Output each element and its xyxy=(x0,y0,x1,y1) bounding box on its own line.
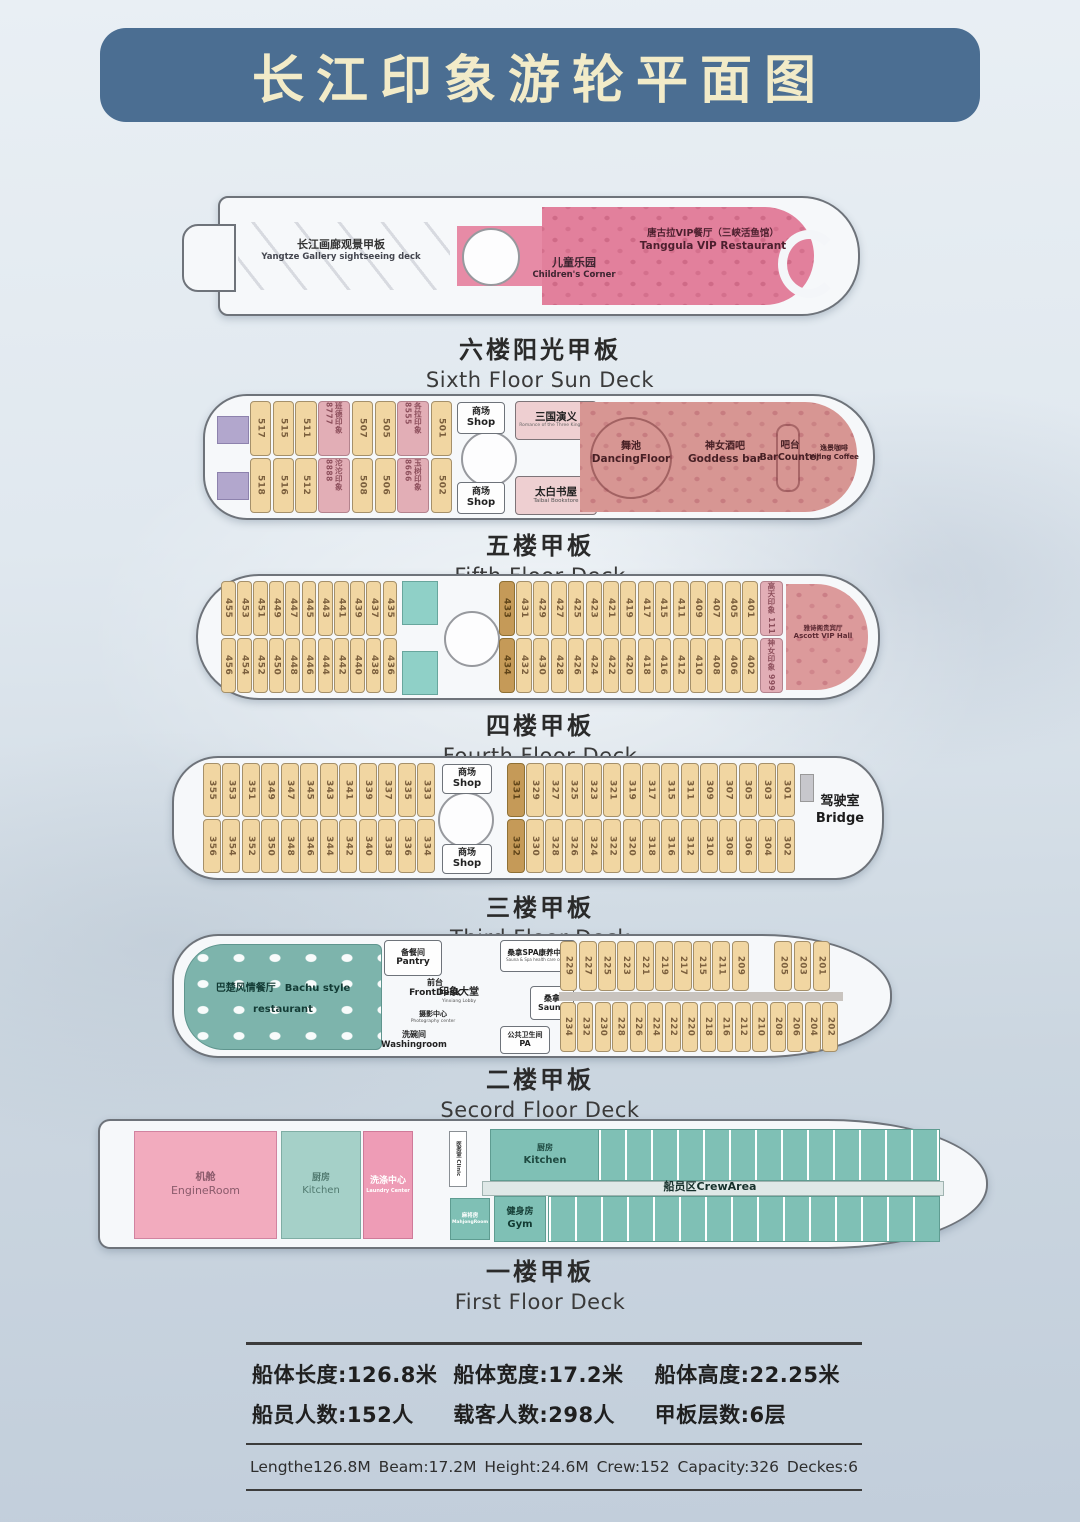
cabin: 402 xyxy=(742,638,758,693)
cabin: 512 xyxy=(295,458,316,513)
cabin: 205 xyxy=(774,941,792,991)
cabin: 406 xyxy=(725,638,741,693)
cabin: 302 xyxy=(777,819,795,873)
cabin: 350 xyxy=(261,819,279,873)
cabin: 422 xyxy=(603,638,619,693)
spec-item-en: Lengthe126.8M xyxy=(250,1458,371,1476)
cabin: 517 xyxy=(250,401,271,456)
spec-item-cn: 船体高度:22.25米 xyxy=(655,1359,856,1389)
deck2-plan: 巴楚风情餐厅 Bachu style restaurant 备餐间Pantry … xyxy=(172,934,892,1058)
cabin: 431 xyxy=(516,581,532,636)
bachu-restaurant-area: 巴楚风情餐厅 Bachu style restaurant xyxy=(184,944,382,1050)
cabin: 515 xyxy=(273,401,294,456)
mahjong-label: 麻将房MahjongRoom xyxy=(452,1213,488,1226)
cabin: 神女印象 999 xyxy=(760,638,784,693)
cabin: 317 xyxy=(642,763,660,817)
cabin: 327 xyxy=(545,763,563,817)
cabin: 223 xyxy=(617,941,635,991)
cabin: 316 xyxy=(661,819,679,873)
tanggula-vip-label: 唐古拉VIP餐厅（三峡活鱼馆） Tanggula VIP Restaurant xyxy=(618,228,808,254)
deck6-stern-seam xyxy=(216,226,224,286)
deck6-caption-en: Sixth Floor Sun Deck xyxy=(0,368,1080,392)
deck5-rooms-top: 517515511班德印象 8777507505各拉印象 8555501 xyxy=(249,401,453,456)
cabin: 318 xyxy=(642,819,660,873)
cabin: 411 xyxy=(673,581,689,636)
cabin: 319 xyxy=(623,763,641,817)
cabin: 336 xyxy=(398,819,416,873)
cabin: 440 xyxy=(350,638,365,693)
pantry-box: 备餐间Pantry xyxy=(384,940,442,976)
cabin: 333 xyxy=(417,763,435,817)
service-block xyxy=(402,651,438,695)
cabin: 204 xyxy=(805,1002,821,1052)
cabin: 346 xyxy=(300,819,318,873)
cabin: 209 xyxy=(732,941,750,991)
cabin: 401 xyxy=(742,581,758,636)
cabin: 312 xyxy=(681,819,699,873)
atrium xyxy=(461,431,517,487)
cabin: 418 xyxy=(638,638,654,693)
cabin: 408 xyxy=(707,638,723,693)
spec-item-cn: 甲板层数:6层 xyxy=(655,1399,856,1429)
deck3-rooms-bottom-right: 3323303283263243223203183163123103083063… xyxy=(506,819,796,873)
cabin: 343 xyxy=(320,763,338,817)
cabin: 328 xyxy=(545,819,563,873)
cabin: 451 xyxy=(253,581,268,636)
goddess-bar-label: 神女酒吧Goddess bar xyxy=(680,440,770,467)
cabin: 518 xyxy=(250,458,271,513)
kitchen-label: 厨房Kitchen xyxy=(302,1173,340,1198)
cabin: 307 xyxy=(719,763,737,817)
deck2-caption: 二楼甲板 Secord Floor Deck xyxy=(0,1060,1080,1122)
spec-item-cn: 船体宽度:17.2米 xyxy=(453,1359,654,1389)
cabin: 423 xyxy=(586,581,602,636)
atrium xyxy=(444,611,500,667)
cabin: 311 xyxy=(681,763,699,817)
cabin: 511 xyxy=(295,401,316,456)
cabin: 329 xyxy=(526,763,544,817)
cabin: 456 xyxy=(221,638,236,693)
deck6-plan: 长江画廊观景甲板 Yangtze Gallery sightseeing dec… xyxy=(218,196,860,316)
shop-box: 商场Shop xyxy=(457,402,505,434)
cabin: 215 xyxy=(693,941,711,991)
deck5-rooms-bottom: 518516512沱沱印象 8888508506玉树印象 8666502 xyxy=(249,458,453,513)
laundry-label: 洗涤中心Laundry Center xyxy=(366,1176,410,1194)
spec-item-cn: 船员人数:152人 xyxy=(252,1399,453,1429)
upper-kitchen-label: 厨房Kitchen xyxy=(524,1143,567,1166)
cabin: 501 xyxy=(431,401,452,456)
deck3-plan: 355353351349347345343341339337335333 356… xyxy=(172,756,884,880)
cabin: 416 xyxy=(655,638,671,693)
cabin: 412 xyxy=(673,638,689,693)
cabin: 443 xyxy=(318,581,333,636)
cabin: 441 xyxy=(334,581,349,636)
cabin: 玉树印象 8666 xyxy=(397,458,429,513)
cabin: 450 xyxy=(269,638,284,693)
photography-label: 摄影中心Photography center xyxy=(400,1010,466,1025)
cabin: 427 xyxy=(551,581,567,636)
cabin: 324 xyxy=(584,819,602,873)
cabin: 221 xyxy=(636,941,654,991)
cabin: 227 xyxy=(579,941,597,991)
clinic-label-cn: 医务室 xyxy=(455,1141,461,1158)
cabin: 226 xyxy=(630,1002,646,1052)
yijing-coffee-label: 逸景咖啡Yijing Coffee xyxy=(808,444,860,462)
deck2-caption-cn: 二楼甲板 xyxy=(0,1060,1080,1095)
poster-title: 长江印象游轮平面图 xyxy=(252,38,828,113)
engine-room-area: 机舱EngineRoom xyxy=(134,1131,277,1239)
deck3-caption-cn: 三楼甲板 xyxy=(0,888,1080,923)
cabin: 234 xyxy=(560,1002,576,1052)
title-banner: 长江印象游轮平面图 xyxy=(100,28,980,122)
cabin: 355 xyxy=(203,763,221,817)
deck4-rooms-bottom-right: 4344324304284264244224204184164124104084… xyxy=(498,638,784,693)
engine-room-label: 机舱EngineRoom xyxy=(171,1171,240,1198)
deck1-caption-en: First Floor Deck xyxy=(0,1290,1080,1314)
deck4-caption-cn: 四楼甲板 xyxy=(0,706,1080,741)
cabin: 309 xyxy=(700,763,718,817)
spec-table: 船体长度:126.8米船体宽度:17.2米船体高度:22.25米船员人数:152… xyxy=(246,1342,862,1491)
shop-box: 商场Shop xyxy=(457,482,505,514)
cabin: 505 xyxy=(375,401,396,456)
atrium xyxy=(438,792,494,848)
cabin: 421 xyxy=(603,581,619,636)
cabin: 303 xyxy=(758,763,776,817)
cabin: 228 xyxy=(612,1002,628,1052)
cabin: 409 xyxy=(690,581,706,636)
cabin: 507 xyxy=(352,401,373,456)
cabin: 315 xyxy=(661,763,679,817)
deck6-caption-cn: 六楼阳光甲板 xyxy=(0,330,1080,365)
washingroom-label: 洗碗间Washingroom xyxy=(378,1030,450,1051)
spec-en-row: Lengthe126.8MBeam:17.2MHeight:24.6MCrew:… xyxy=(246,1445,862,1491)
deck6-stern-platform xyxy=(182,224,236,292)
shop-box: 商场Shop xyxy=(442,764,492,794)
deck6-caption: 六楼阳光甲板 Sixth Floor Sun Deck xyxy=(0,330,1080,392)
cabin: 304 xyxy=(758,819,776,873)
clinic-label-en: Clinic xyxy=(455,1160,461,1177)
mahjong-room: 麻将房MahjongRoom xyxy=(450,1198,490,1240)
bachu-restaurant-label: 巴楚风情餐厅 Bachu style restaurant xyxy=(198,976,368,1018)
cabin: 506 xyxy=(375,458,396,513)
cabin: 331 xyxy=(507,763,525,817)
deck3-rooms-bottom-left: 356354352350348346344342340338336334 xyxy=(202,819,436,873)
service-block xyxy=(402,581,438,625)
deck5-plan: 517515511班德印象 8777507505各拉印象 8555501 518… xyxy=(203,394,875,520)
cabin: 435 xyxy=(383,581,398,636)
cabin: 454 xyxy=(237,638,252,693)
corridor xyxy=(559,992,843,1001)
cabin: 211 xyxy=(712,941,730,991)
deck2-rooms-top: 229227225223221219217215211209205203201 xyxy=(559,941,831,991)
deck4-plan: 455453451449447445443441439437435 456454… xyxy=(196,574,880,700)
cabin: 345 xyxy=(300,763,318,817)
gym-area: 健身房Gym xyxy=(494,1196,546,1242)
spec-item-cn: 船体长度:126.8米 xyxy=(252,1359,453,1389)
cabin: 449 xyxy=(269,581,284,636)
cabin: 225 xyxy=(598,941,616,991)
cabin: 448 xyxy=(285,638,300,693)
cabin: 高天印象 111 xyxy=(760,581,784,636)
cabin: 337 xyxy=(378,763,396,817)
cabin: 206 xyxy=(787,1002,803,1052)
cabin: 339 xyxy=(359,763,377,817)
cabin: 306 xyxy=(739,819,757,873)
cabin: 430 xyxy=(533,638,549,693)
stairs-block xyxy=(217,472,249,500)
cabin: 516 xyxy=(273,458,294,513)
cabin: 341 xyxy=(339,763,357,817)
cabin: 347 xyxy=(281,763,299,817)
cabin: 332 xyxy=(507,819,525,873)
cabin: 202 xyxy=(822,1002,838,1052)
cabin: 439 xyxy=(350,581,365,636)
laundry-area: 洗涤中心Laundry Center xyxy=(363,1131,413,1239)
deck5-caption-cn: 五楼甲板 xyxy=(0,526,1080,561)
cabin: 410 xyxy=(690,638,706,693)
cabin: 222 xyxy=(665,1002,681,1052)
cabin: 445 xyxy=(302,581,317,636)
cabin: 216 xyxy=(717,1002,733,1052)
cabin: 502 xyxy=(431,458,452,513)
cabin: 330 xyxy=(526,819,544,873)
cabin: 217 xyxy=(674,941,692,991)
cabin: 432 xyxy=(516,638,532,693)
spec-item-en: Crew:152 xyxy=(597,1458,670,1476)
cabin: 301 xyxy=(777,763,795,817)
cabin: 447 xyxy=(285,581,300,636)
cabin: 351 xyxy=(242,763,260,817)
spec-item-en: Deckes:6 xyxy=(787,1458,858,1476)
deck3-rooms-top-right: 3313293273253233213193173153113093073053… xyxy=(506,763,796,817)
spec-item-en: Beam:17.2M xyxy=(379,1458,477,1476)
dancing-floor-label: 舞池DancingFloor xyxy=(582,440,680,467)
deck-plan-poster: 长江印象游轮平面图 长江画廊观景甲板 Yangtze Gallery sight… xyxy=(0,0,1080,1522)
lounge-area: 舞池DancingFloor 神女酒吧Goddess bar 吧台BarCoun… xyxy=(580,402,857,512)
cabin: 342 xyxy=(339,819,357,873)
cabin: 340 xyxy=(359,819,377,873)
cabin: 310 xyxy=(700,819,718,873)
crew-cabins-bottom xyxy=(548,1196,940,1242)
cabin: 220 xyxy=(682,1002,698,1052)
cabin: 415 xyxy=(655,581,671,636)
cabin: 437 xyxy=(366,581,381,636)
cabin: 433 xyxy=(499,581,515,636)
lobby-label: 印象大堂Yinxiang Lobby xyxy=(426,986,492,1005)
cabin: 沱沱印象 8888 xyxy=(318,458,350,513)
cabin: 208 xyxy=(770,1002,786,1052)
shop-box: 商场Shop xyxy=(442,844,492,874)
gallery-label: 长江画廊观景甲板 Yangtze Gallery sightseeing dec… xyxy=(246,238,436,263)
cabin: 325 xyxy=(565,763,583,817)
cabin: 344 xyxy=(320,819,338,873)
cabin: 455 xyxy=(221,581,236,636)
deck2-rooms-bottom: 2342322302282262242222202182162122102082… xyxy=(559,1002,839,1052)
spec-item-en: Capacity:326 xyxy=(678,1458,779,1476)
cabin: 354 xyxy=(222,819,240,873)
cabin: 322 xyxy=(603,819,621,873)
public-toilet-box: 公共卫生间PA xyxy=(500,1026,550,1054)
cabin: 305 xyxy=(739,763,757,817)
deck4-rooms-bottom-left: 456454452450448446444442440438436 xyxy=(220,638,398,693)
spec-cn-rows: 船体长度:126.8米船体宽度:17.2米船体高度:22.25米船员人数:152… xyxy=(246,1342,862,1445)
cabin: 201 xyxy=(813,941,831,991)
cabin: 224 xyxy=(647,1002,663,1052)
cabin: 338 xyxy=(378,819,396,873)
cabin: 232 xyxy=(577,1002,593,1052)
stairs-block xyxy=(217,416,249,444)
cabin: 436 xyxy=(383,638,398,693)
deck4-rooms-top-right: 4334314294274254234214194174154114094074… xyxy=(498,581,784,636)
cabin: 326 xyxy=(565,819,583,873)
ascott-vip-hall: 雅诗阁贵宾厅Ascott VIP Hall xyxy=(786,584,868,690)
cabin: 班德印象 8777 xyxy=(318,401,350,456)
cabin: 420 xyxy=(620,638,636,693)
cabin: 425 xyxy=(568,581,584,636)
deck1-caption: 一楼甲板 First Floor Deck xyxy=(0,1252,1080,1314)
crew-area-label: 船员区CrewArea xyxy=(600,1179,820,1195)
cabin: 353 xyxy=(222,763,240,817)
cabin: 442 xyxy=(334,638,349,693)
cabin: 428 xyxy=(551,638,567,693)
cabin: 446 xyxy=(302,638,317,693)
cabin: 426 xyxy=(568,638,584,693)
cabin: 452 xyxy=(253,638,268,693)
cabin: 218 xyxy=(700,1002,716,1052)
spec-item-en: Height:24.6M xyxy=(484,1458,588,1476)
cabin: 424 xyxy=(586,638,602,693)
cabin: 320 xyxy=(623,819,641,873)
bridge-label: 驾驶室Bridge xyxy=(804,794,876,828)
cabin: 417 xyxy=(638,581,654,636)
cabin: 321 xyxy=(603,763,621,817)
upper-kitchen-area: 厨房Kitchen xyxy=(490,1129,600,1181)
cabin: 229 xyxy=(560,941,578,991)
ascott-vip-label: 雅诗阁贵宾厅Ascott VIP Hall xyxy=(788,624,858,642)
cabin: 334 xyxy=(417,819,435,873)
cabin: 各拉印象 8555 xyxy=(397,401,429,456)
cabin: 203 xyxy=(794,941,812,991)
cabin: 335 xyxy=(398,763,416,817)
cabin: 434 xyxy=(499,638,515,693)
cabin: 407 xyxy=(707,581,723,636)
cabin: 453 xyxy=(237,581,252,636)
cabin: 210 xyxy=(752,1002,768,1052)
cabin: 352 xyxy=(242,819,260,873)
cabin xyxy=(751,941,773,991)
deck1-plan: 机舱EngineRoom 厨房Kitchen 洗涤中心Laundry Cente… xyxy=(98,1119,988,1249)
cabin: 356 xyxy=(203,819,221,873)
cabin: 348 xyxy=(281,819,299,873)
cabin: 219 xyxy=(655,941,673,991)
cabin: 212 xyxy=(735,1002,751,1052)
deck1-caption-cn: 一楼甲板 xyxy=(0,1252,1080,1287)
kitchen-area: 厨房Kitchen xyxy=(281,1131,361,1239)
childrens-corner-label: 儿童乐园 Children's Corner xyxy=(516,256,632,281)
cabin: 419 xyxy=(620,581,636,636)
clinic-box: 医务室 Clinic xyxy=(449,1131,467,1187)
cabin: 349 xyxy=(261,763,279,817)
cabin: 429 xyxy=(533,581,549,636)
funnel xyxy=(462,228,520,286)
cabin: 323 xyxy=(584,763,602,817)
cabin: 405 xyxy=(725,581,741,636)
crew-cabins-top xyxy=(598,1129,940,1181)
cabin: 444 xyxy=(318,638,333,693)
deck4-rooms-top-left: 455453451449447445443441439437435 xyxy=(220,581,398,636)
cabin: 438 xyxy=(366,638,381,693)
cabin: 308 xyxy=(719,819,737,873)
deck3-rooms-top-left: 355353351349347345343341339337335333 xyxy=(202,763,436,817)
cabin: 230 xyxy=(595,1002,611,1052)
cabin: 508 xyxy=(352,458,373,513)
gym-label: 健身房Gym xyxy=(506,1207,533,1232)
spec-item-cn: 载客人数:298人 xyxy=(453,1399,654,1429)
